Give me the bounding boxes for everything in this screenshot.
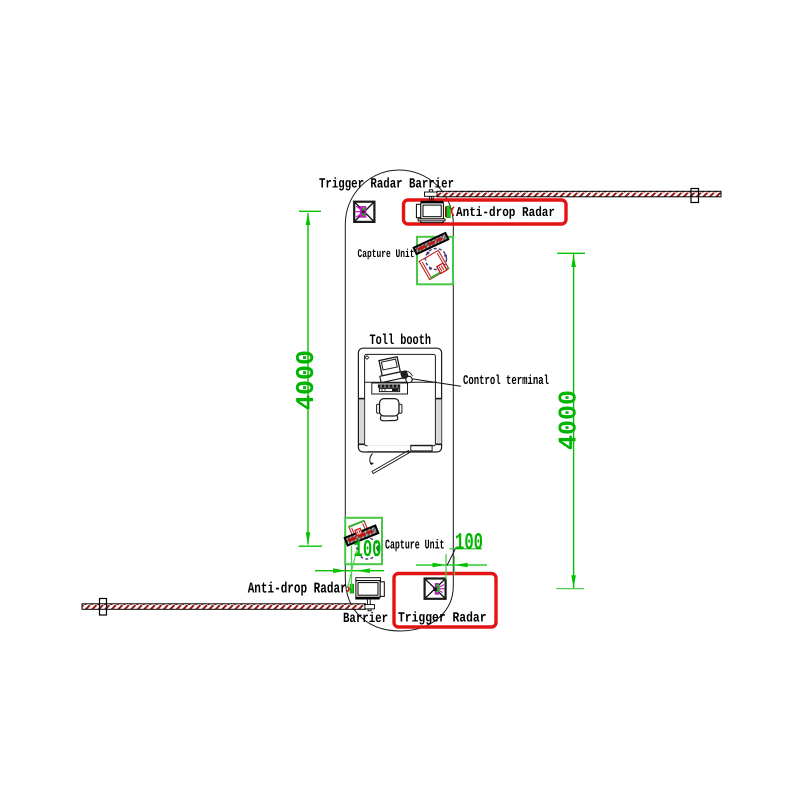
svg-text:100: 100 (354, 537, 382, 564)
svg-text:100: 100 (455, 530, 483, 557)
svg-text:Trigger Radar Barrier: Trigger Radar Barrier (319, 177, 454, 193)
svg-text:Anti-drop Radar: Anti-drop Radar (248, 580, 347, 597)
svg-text:Capture Unit: Capture Unit (385, 537, 445, 552)
svg-text:4000: 4000 (292, 350, 321, 410)
svg-text:Toll booth: Toll booth (370, 333, 432, 349)
svg-text:Capture Unit: Capture Unit (358, 248, 415, 261)
svg-text:Trigger Radar: Trigger Radar (398, 611, 487, 627)
svg-text:4000: 4000 (555, 390, 584, 450)
svg-text:Control terminal: Control terminal (463, 373, 549, 388)
svg-text:Anti-drop Radar: Anti-drop Radar (456, 206, 555, 221)
svg-text:Barrier: Barrier (343, 611, 388, 627)
